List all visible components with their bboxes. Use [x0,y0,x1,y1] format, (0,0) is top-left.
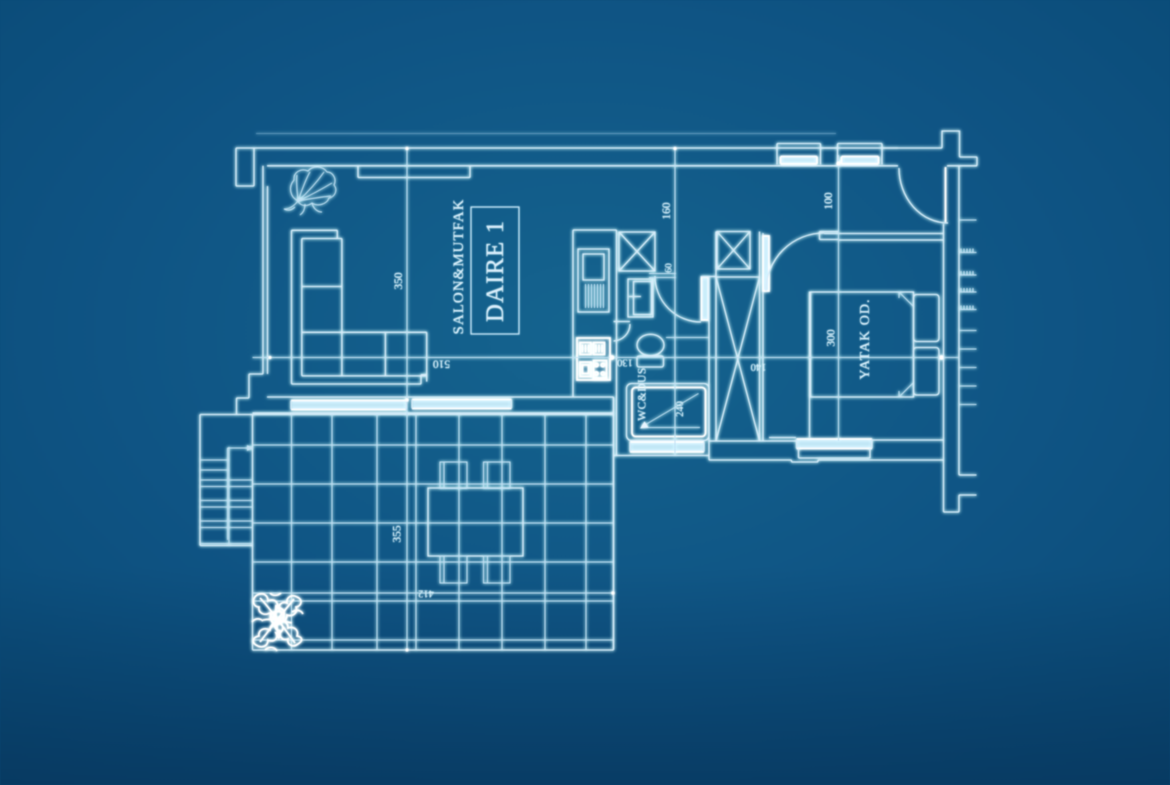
svg-text:160: 160 [661,202,673,220]
svg-text:412: 412 [418,588,434,599]
svg-text:YATAK OD.: YATAK OD. [858,299,873,380]
svg-text:510: 510 [433,358,451,370]
svg-text:355: 355 [392,525,404,543]
svg-text:WC&DUS: WC&DUS [637,367,649,420]
svg-text:DAIRE 1: DAIRE 1 [482,220,509,322]
svg-text:240: 240 [675,401,686,417]
svg-text:350: 350 [393,272,405,290]
svg-text:100: 100 [823,192,835,210]
svg-text:60: 60 [665,263,675,273]
svg-text:SALON&MUTFAK: SALON&MUTFAK [451,199,467,335]
svg-text:140: 140 [751,361,767,372]
svg-text:300: 300 [826,329,838,347]
svg-text:130: 130 [617,357,633,368]
